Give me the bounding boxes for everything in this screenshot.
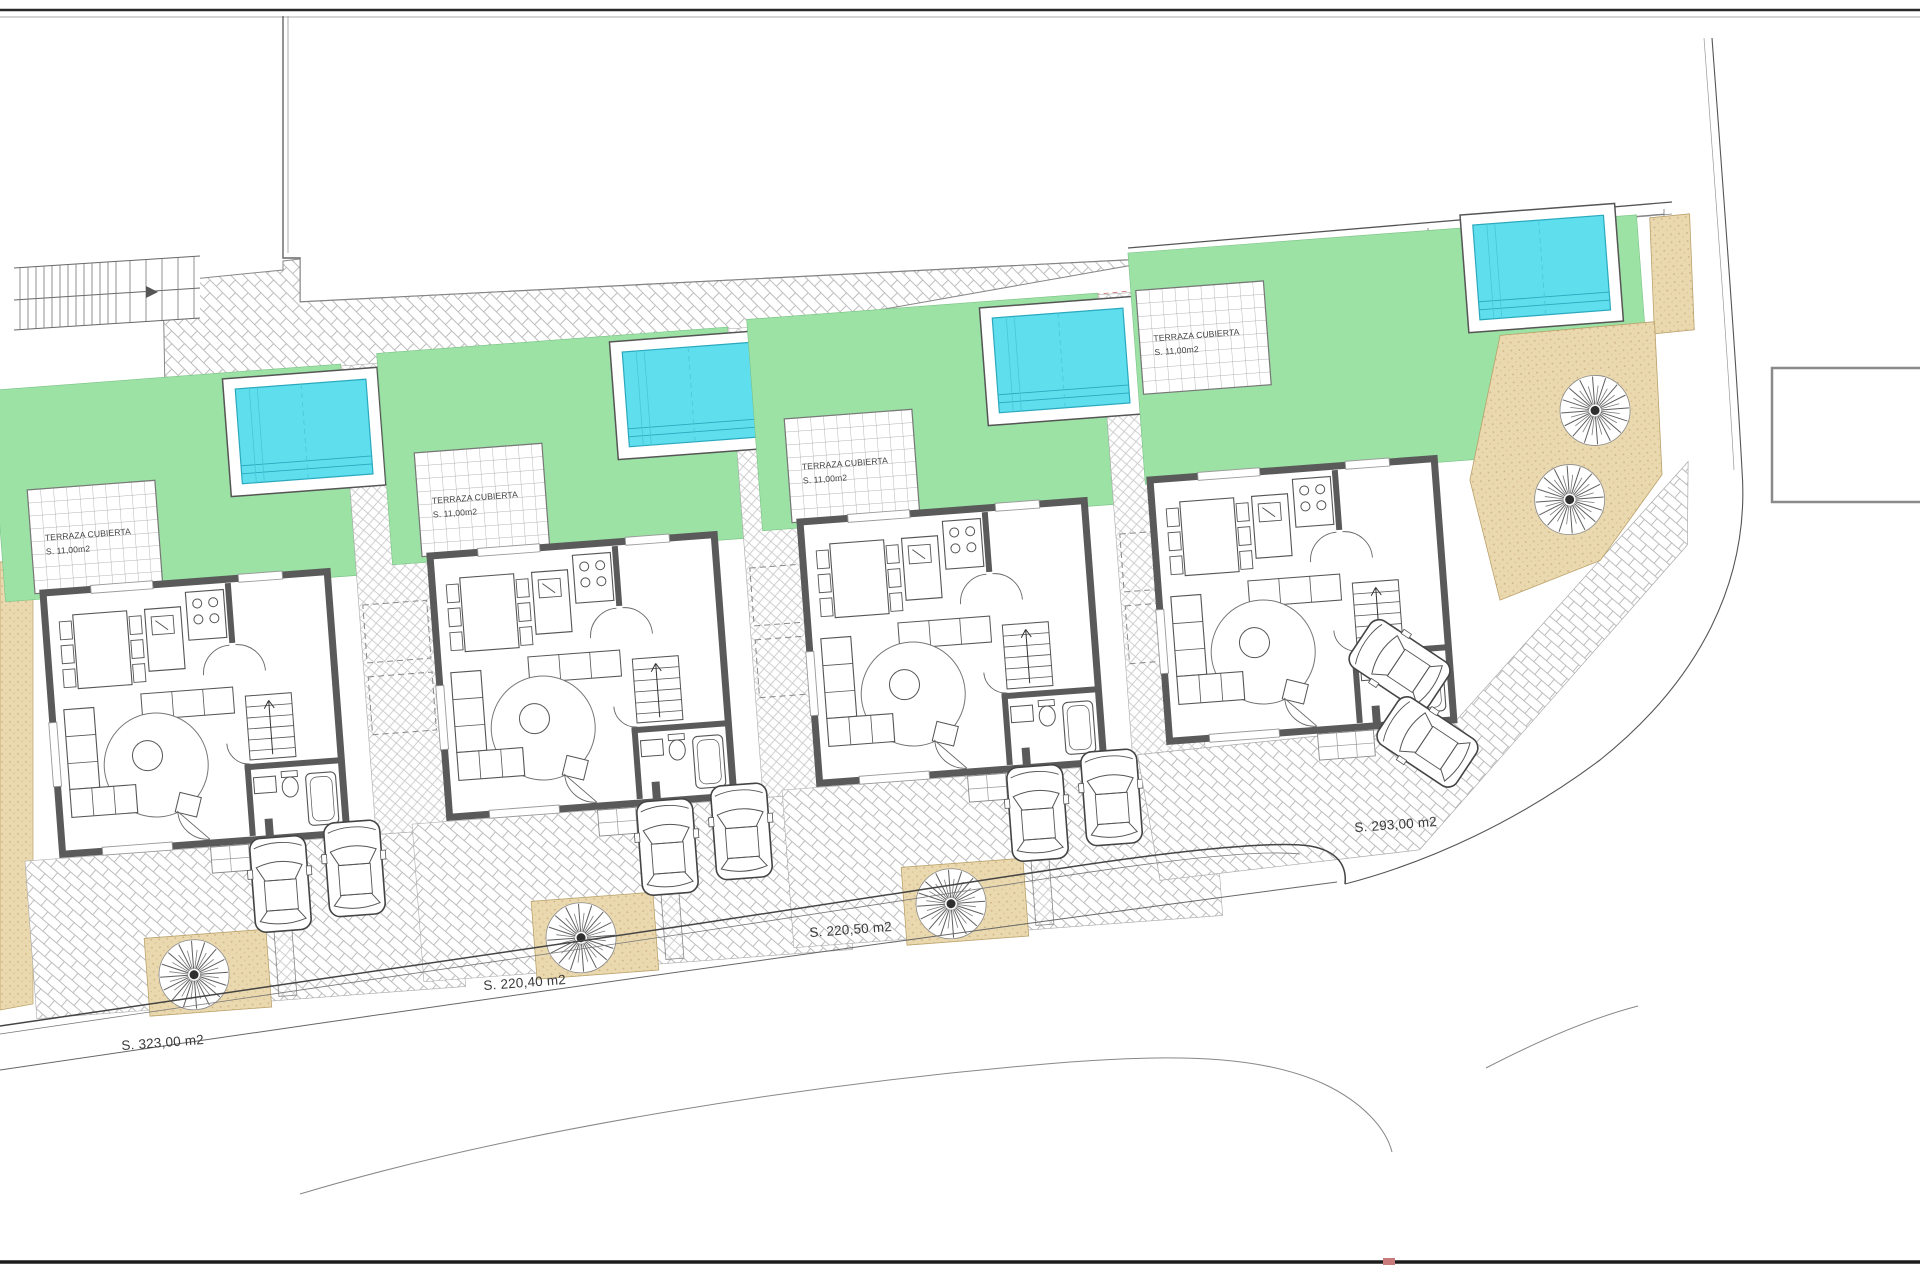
villa-4: TERRAZA CUBIERTA S. 11,00m2 <box>1099 198 1736 882</box>
left-gravel-strip <box>0 558 33 1010</box>
neighbor-building-outline <box>283 16 1150 302</box>
swimming-pool <box>1460 203 1623 332</box>
red-reference-tick <box>1383 1258 1395 1265</box>
site-plan-drawing: TERRAZA CUBIERTA S. 11,00m2 TERRAZA CUBI… <box>0 0 1920 1280</box>
site-plan-page: TERRAZA CUBIERTA S. 11,00m2 TERRAZA CUBI… <box>0 0 1920 1280</box>
page-border-top <box>0 10 1920 17</box>
boundary-stairs <box>14 254 200 332</box>
gravel-strip <box>1646 214 1699 334</box>
page-border-bottom <box>0 1258 1920 1265</box>
plot1-area-label: S. 323,00 m2 <box>121 1032 205 1053</box>
neighbor-structure <box>1772 368 1920 502</box>
